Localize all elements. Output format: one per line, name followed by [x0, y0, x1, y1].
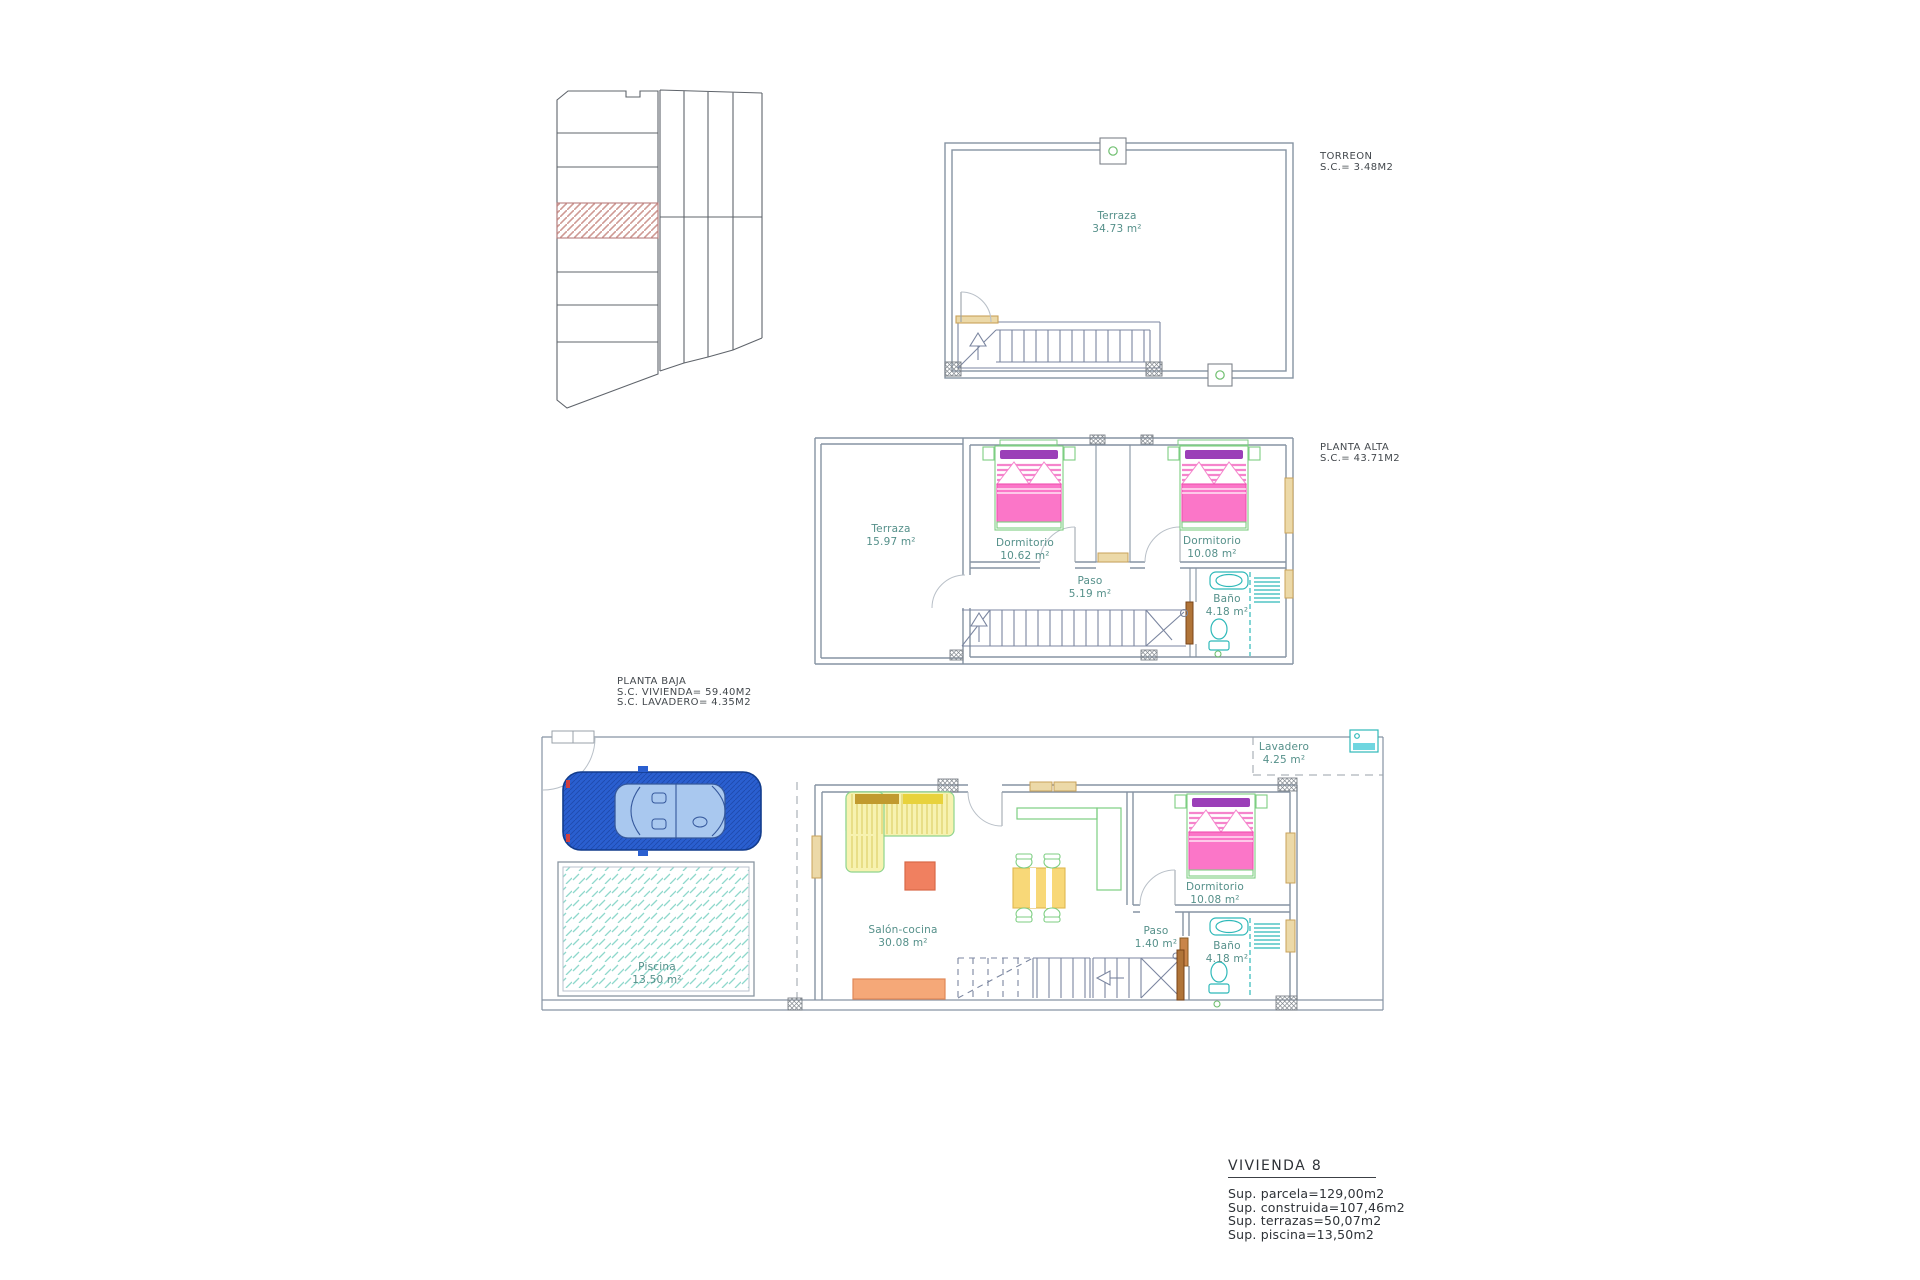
floor-plan-sheet: TORREON S.C.= 3.48M2 PLANTA ALTA S.C.= 4…	[0, 0, 1920, 1280]
room-label-pa-terraza: Terraza 15.97 m²	[866, 523, 915, 548]
car	[563, 766, 761, 856]
stair-up-arrow	[971, 613, 987, 626]
summary-block: VIVIENDA 8 Sup. parcela=129,00m2 Sup. co…	[1228, 1158, 1405, 1241]
room-area: 10.08 m²	[1186, 894, 1244, 907]
room-label-pa-dormitorio-1: Dormitorio 10.62 m²	[996, 537, 1054, 562]
column	[1090, 435, 1105, 444]
room-area: 4.18 m²	[1206, 606, 1249, 619]
door	[968, 792, 1175, 905]
upper-stairs	[962, 610, 1188, 647]
room-name: Lavadero	[1259, 741, 1309, 754]
column	[1146, 362, 1162, 376]
roof-drain-box	[1100, 138, 1126, 164]
room-name: Terraza	[1092, 210, 1141, 223]
plan-area-label: S.C. LAVADERO= 4.35M2	[617, 698, 752, 709]
room-area: 34.73 m²	[1092, 223, 1141, 236]
room-area: 30.08 m²	[868, 937, 937, 950]
summary-line: Sup. parcela=129,00m2	[1228, 1187, 1405, 1201]
column	[1141, 435, 1153, 444]
column	[1276, 996, 1297, 1010]
coffee-table	[905, 862, 935, 890]
sofa	[846, 792, 954, 872]
column	[938, 779, 958, 792]
room-label-pb-salon-cocina: Salón-cocina 30.08 m²	[868, 924, 937, 949]
drain	[1215, 651, 1221, 657]
washing-machine	[1350, 730, 1378, 752]
torreon-stairs	[958, 322, 1160, 368]
room-area: 4.18 m²	[1206, 953, 1249, 966]
room-area: 13.50 m²	[632, 974, 681, 987]
torreon-door	[956, 292, 998, 323]
bed	[1175, 794, 1267, 878]
site-plot-highlight	[557, 203, 658, 238]
column	[945, 362, 961, 376]
column	[1141, 650, 1157, 660]
room-label-pb-bano: Baño 4.18 m²	[1206, 940, 1249, 965]
room-label-torreon-terraza: Terraza 34.73 m²	[1092, 210, 1141, 235]
door-leaf	[1186, 602, 1193, 644]
plan-drawing	[0, 0, 1920, 1280]
column	[950, 650, 963, 660]
room-area: 4.25 m²	[1259, 754, 1309, 767]
summary-title: VIVIENDA 8	[1228, 1158, 1405, 1174]
plan-title: TORREON	[1320, 152, 1393, 163]
room-label-pa-paso: Paso 5.19 m²	[1069, 575, 1112, 600]
room-area: 5.19 m²	[1069, 588, 1112, 601]
planta-alta-title-block: PLANTA ALTA S.C.= 43.71M2	[1320, 443, 1400, 464]
torreon-plan	[945, 138, 1293, 386]
ground-stairs	[958, 953, 1180, 998]
room-label-pb-piscina: Piscina 13.50 m²	[632, 961, 681, 986]
room-label-pb-dormitorio: Dormitorio 10.08 m²	[1186, 881, 1244, 906]
room-area: 10.08 m²	[1183, 548, 1241, 561]
planta-baja-title-block: PLANTA BAJA S.C. VIVIENDA= 59.40M2 S.C. …	[617, 677, 752, 709]
room-name: Baño	[1206, 593, 1249, 606]
kitchen-counter-low	[853, 979, 945, 999]
stair-partition	[1177, 950, 1184, 1000]
column	[1278, 778, 1297, 791]
room-name: Terraza	[866, 523, 915, 536]
summary-underline	[1228, 1177, 1376, 1178]
room-area: 15.97 m²	[866, 536, 915, 549]
plan-area-label: S.C.= 3.48M2	[1320, 163, 1393, 174]
bed	[983, 446, 1260, 530]
room-label-pa-dormitorio-2: Dormitorio 10.08 m²	[1183, 535, 1241, 560]
torreon-title-block: TORREON S.C.= 3.48M2	[1320, 152, 1393, 173]
roof-drain-box	[1208, 364, 1232, 386]
kitchen-counter	[1097, 808, 1121, 890]
dining-set	[1013, 854, 1065, 922]
room-area: 1.40 m²	[1135, 938, 1178, 951]
room-name: Dormitorio	[996, 537, 1054, 550]
summary-line: Sup. piscina=13,50m2	[1228, 1228, 1405, 1242]
plan-title: PLANTA ALTA	[1320, 443, 1400, 454]
plan-area-label: S.C.= 43.71M2	[1320, 454, 1400, 465]
room-area: 10.62 m²	[996, 550, 1054, 563]
summary-line: Sup. terrazas=50,07m2	[1228, 1214, 1405, 1228]
room-name: Piscina	[632, 961, 681, 974]
room-name: Dormitorio	[1186, 881, 1244, 894]
room-label-pb-lavadero: Lavadero 4.25 m²	[1259, 741, 1309, 766]
room-name: Dormitorio	[1183, 535, 1241, 548]
room-name: Salón-cocina	[868, 924, 937, 937]
kitchen-counter	[1017, 808, 1097, 819]
room-name: Baño	[1206, 940, 1249, 953]
site-plan	[557, 90, 762, 408]
plan-title: PLANTA BAJA	[617, 677, 752, 688]
room-name: Paso	[1135, 925, 1178, 938]
summary-line: Sup. construida=107,46m2	[1228, 1201, 1405, 1215]
drain	[1214, 1001, 1220, 1007]
room-label-pa-bano: Baño 4.18 m²	[1206, 593, 1249, 618]
room-name: Paso	[1069, 575, 1112, 588]
column	[788, 998, 802, 1010]
room-label-pb-paso: Paso 1.40 m²	[1135, 925, 1178, 950]
stair-up-arrow	[970, 333, 986, 346]
stair-down-arrow	[1097, 971, 1110, 985]
